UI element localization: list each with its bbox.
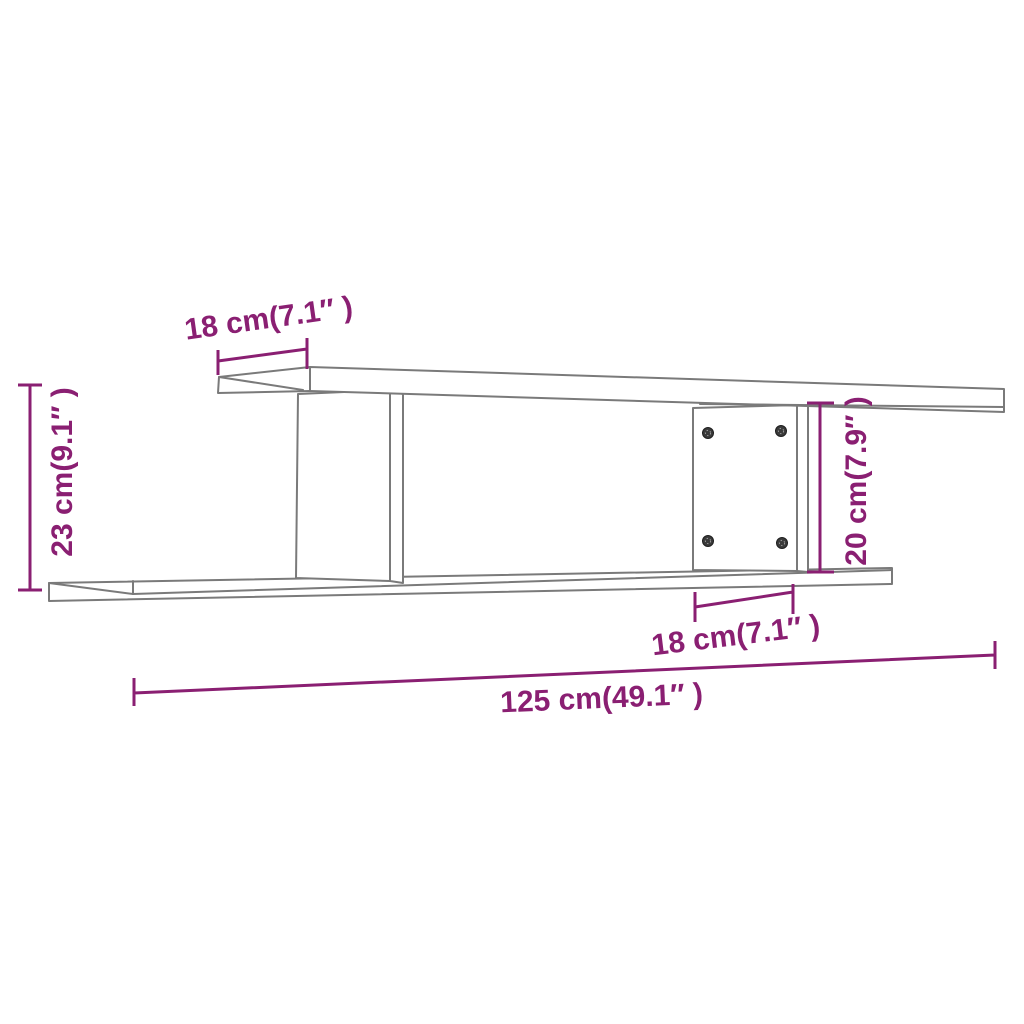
dimension-label-overall-height: 23 cm(9.1″ ) [46,387,79,556]
dimension-overall-width: 125 cm(49.1″ ) [134,641,995,719]
dimension-bottom-shelf-depth: 18 cm(7.1″ ) [650,584,822,662]
dimension-label-right-panel-height: 20 cm(7.9″ ) [840,396,873,565]
screw-icon [777,538,788,549]
left-panel-front-edge [390,390,403,583]
screw-icon [703,428,714,439]
dimension-label-overall-width: 125 cm(49.1″ ) [500,678,704,720]
left-panel-face [296,390,390,581]
dimension-line [18,385,42,590]
right-support-panel [693,404,808,572]
shelf-dimension-diagram: 18 cm(7.1″ ) 23 cm(9.1″ ) 20 cm(7.9″ ) 1… [0,0,1024,1024]
diagram-canvas: 18 cm(7.1″ ) 23 cm(9.1″ ) 20 cm(7.9″ ) 1… [0,0,1024,1024]
dimension-overall-height: 23 cm(9.1″ ) [18,385,79,590]
dimension-label-bottom-shelf-depth: 18 cm(7.1″ ) [650,609,822,662]
left-support-panel [296,390,403,583]
screw-icon [703,536,714,547]
dimension-top-shelf-depth: 18 cm(7.1″ ) [182,290,354,375]
dimension-label-top-shelf-depth: 18 cm(7.1″ ) [182,290,354,346]
dimension-annotations: 18 cm(7.1″ ) 23 cm(9.1″ ) 20 cm(7.9″ ) 1… [18,290,995,719]
screw-icon [776,426,787,437]
dimension-right-panel-height: 20 cm(7.9″ ) [807,396,873,572]
dimension-line [807,403,834,572]
right-panel-front-edge [797,404,808,572]
